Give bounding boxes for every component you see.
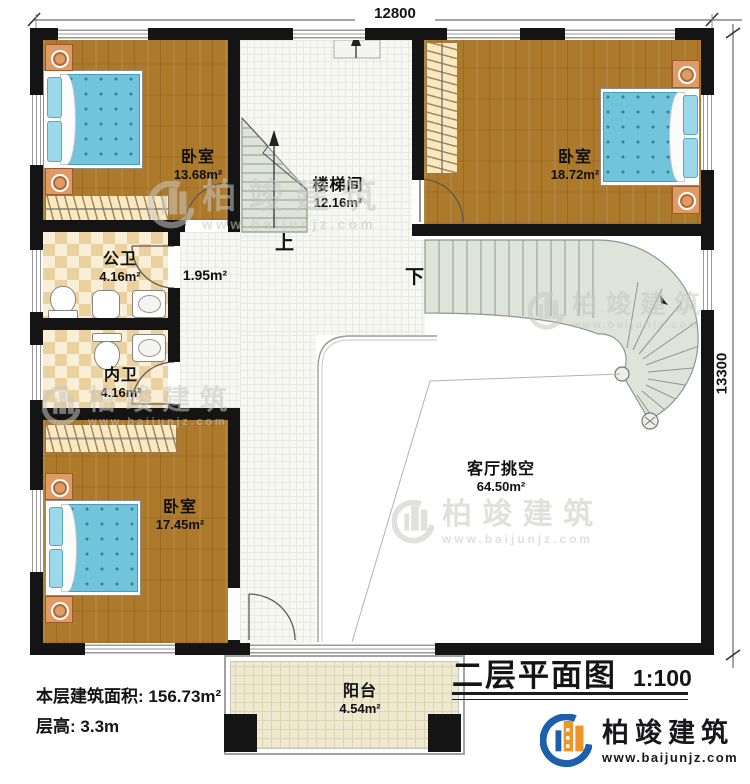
watermark-brand-name: 柏竣建筑 — [572, 293, 709, 318]
room-area: 12.16m² — [288, 195, 388, 211]
room-area: 17.45m² — [130, 517, 230, 533]
pillow — [49, 507, 63, 546]
drawing-scale: 1:100 — [633, 665, 692, 692]
nightstand — [672, 186, 700, 214]
window-left-3 — [30, 345, 43, 400]
brand-url: www.baijunjz.com — [602, 750, 738, 765]
label-bedroom-bottom-left: 卧室 17.45m² — [130, 498, 230, 533]
room-area: 18.72m² — [525, 167, 625, 183]
window-right-1 — [701, 95, 714, 170]
pillow — [683, 95, 698, 135]
lamp-icon — [678, 66, 696, 84]
window-left-2 — [30, 250, 43, 312]
title-underline — [452, 692, 688, 700]
label-bedroom-top-left: 卧室 13.68m² — [148, 148, 248, 183]
watermark-brand-name: 柏竣建筑 — [442, 500, 603, 530]
room-name: 卧室 — [148, 148, 248, 167]
stair-up-label: 上 — [275, 228, 294, 255]
room-area: 1.95m² — [165, 267, 245, 284]
window-top-2 — [293, 28, 365, 40]
lamp-icon — [678, 192, 696, 210]
label-living-void: 客厅挑空 64.50m² — [448, 460, 554, 495]
pillow — [47, 121, 62, 162]
wall-bedroom2-bottom — [412, 224, 714, 236]
room-name: 内卫 — [71, 366, 171, 385]
room-name: 公卫 — [70, 250, 170, 269]
watermark-brand-url: www.baijunjz.com — [572, 320, 700, 331]
room-name: 客厅挑空 — [448, 460, 554, 479]
bed-bottom-left — [45, 500, 141, 596]
brand-block: 柏竣建筑 www.baijunjz.com — [540, 714, 738, 770]
room-area: 13.68m² — [148, 167, 248, 183]
brand-name: 柏竣建筑 — [602, 720, 738, 747]
wardrobe-top-left — [45, 195, 169, 223]
label-bedroom-right: 卧室 18.72m² — [525, 148, 625, 183]
room-area: 4.54m² — [318, 701, 402, 717]
floor-height-label: 层高: — [36, 717, 76, 736]
wall-bath-right-1 — [168, 232, 180, 246]
wall-bedroom1-bottom — [43, 220, 185, 232]
mattress — [67, 504, 138, 592]
stair-down-label: 下 — [405, 262, 424, 289]
pillow — [47, 77, 62, 118]
sink-private — [132, 334, 166, 362]
floor-height-text: 层高: 3.3m — [36, 712, 119, 737]
watermark-4: 柏竣建筑 www.baijunjz.com — [392, 500, 603, 546]
balcony-pillar-right — [428, 714, 461, 752]
floor-height-value: 3.3m — [80, 717, 119, 736]
pillow — [49, 549, 63, 588]
pillow — [683, 138, 698, 178]
window-bottom-1 — [85, 643, 175, 655]
wall-bedroom3-right-lower — [228, 640, 240, 655]
drawing-title: 二层平面图 1:100 — [452, 650, 692, 695]
nightstand — [45, 473, 73, 500]
balcony-sliding-door — [250, 643, 435, 655]
room-area: 64.50m² — [448, 479, 554, 495]
label-public-bath: 公卫 4.16m² — [70, 250, 170, 285]
room-name: 楼梯间 — [288, 176, 388, 195]
wall-stairwell-left — [228, 40, 240, 232]
bed-top-left — [43, 70, 143, 169]
watermark-2: 柏竣建筑 www.baijunjz.com — [528, 292, 709, 332]
label-private-bath: 内卫 4.16m² — [71, 366, 171, 401]
wall-bedroom2-left — [412, 40, 424, 180]
floor-area-label: 本层建筑面积: — [36, 687, 144, 706]
floor-area-value: 156.73m² — [148, 687, 221, 706]
window-top-3 — [447, 28, 520, 40]
dimension-right: 13300 — [714, 344, 731, 404]
window-left-4 — [30, 490, 43, 572]
lamp-icon — [51, 602, 69, 620]
label-hallway: 1.95m² — [165, 267, 245, 284]
room-area: 4.16m² — [71, 385, 171, 401]
lamp-icon — [51, 50, 69, 68]
floor-area-text: 本层建筑面积: 156.73m² — [36, 682, 221, 707]
hall-floor-corridor — [180, 232, 240, 408]
room-area: 4.16m² — [70, 269, 170, 285]
mattress — [66, 74, 140, 165]
lamp-icon — [51, 174, 69, 192]
sink-public — [132, 290, 166, 318]
label-balcony: 阳台 4.54m² — [318, 682, 402, 717]
room-name: 卧室 — [130, 498, 230, 517]
hall-floor-lower — [240, 335, 316, 643]
nightstand — [672, 60, 700, 88]
brand-logo-watermark-icon — [392, 500, 434, 546]
nightstand — [45, 44, 73, 71]
watermark-brand-url: www.baijunjz.com — [442, 532, 593, 546]
window-left-1 — [30, 95, 43, 165]
wardrobe-right — [426, 42, 458, 174]
lamp-icon — [51, 479, 69, 497]
wall-between-baths — [43, 318, 180, 330]
window-right-2 — [701, 250, 714, 310]
floor-plan: 卧室 13.68m² 楼梯间 12.16m² 卧室 18.72m² 公卫 4.1… — [0, 0, 750, 784]
nightstand — [45, 596, 73, 623]
label-stairwell: 楼梯间 12.16m² — [288, 176, 388, 211]
nightstand — [45, 168, 73, 195]
sink-bowl — [138, 295, 161, 313]
sink-bowl — [138, 339, 161, 357]
window-top-4 — [565, 28, 675, 40]
balcony-pillar-left — [224, 714, 257, 752]
window-top-1 — [58, 28, 148, 40]
room-name: 卧室 — [525, 148, 625, 167]
wardrobe-bottom-left — [45, 424, 177, 453]
wall-bedroom3-top — [43, 408, 240, 420]
brand-logo-icon — [540, 714, 592, 770]
hall-floor-upper — [240, 240, 425, 335]
shower-column — [92, 290, 120, 319]
brand-logo-watermark-icon — [528, 292, 564, 332]
drawing-title-text: 二层平面图 — [452, 650, 617, 695]
room-name: 阳台 — [318, 682, 402, 701]
dimension-top: 12800 — [355, 5, 435, 22]
